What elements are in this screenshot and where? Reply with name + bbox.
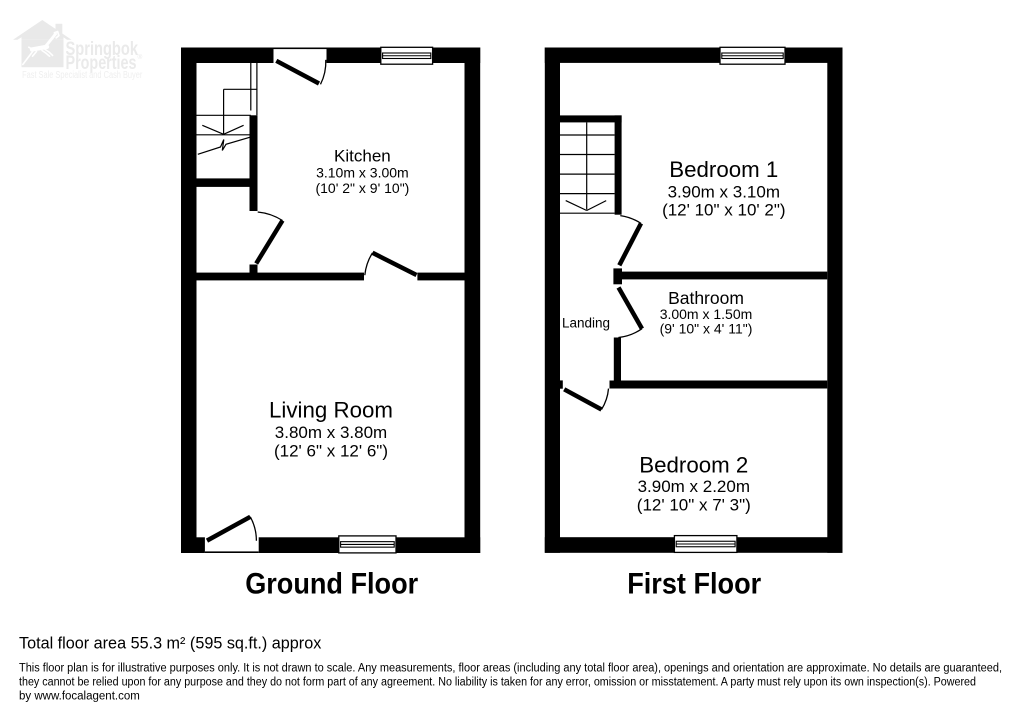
svg-text:Fast Sale Specialist and Cash: Fast Sale Specialist and Cash Buyer — [22, 70, 143, 81]
svg-text:Kitchen: Kitchen — [334, 147, 391, 166]
svg-text:®: ® — [138, 53, 143, 61]
svg-text:Ground Floor: Ground Floor — [245, 568, 418, 601]
svg-text:Bedroom 1: Bedroom 1 — [669, 157, 778, 182]
svg-text:Landing: Landing — [562, 315, 610, 330]
svg-text:Bedroom 2: Bedroom 2 — [639, 452, 748, 477]
svg-text:Total floor area 55.3 m² (595: Total floor area 55.3 m² (595 sq.ft.) ap… — [19, 634, 321, 652]
svg-text:they cannot be relied upon for: they cannot be relied upon for any purpo… — [19, 677, 976, 689]
svg-text:Bathroom: Bathroom — [668, 288, 744, 308]
svg-text:First Floor: First Floor — [627, 568, 761, 601]
svg-text:This floor plan is for illustr: This floor plan is for illustrative purp… — [19, 663, 1002, 675]
svg-text:3.90m x 2.20m: 3.90m x 2.20m — [638, 477, 750, 496]
svg-text:3.90m x 3.10m: 3.90m x 3.10m — [668, 182, 780, 201]
svg-text:by www.focalagent.com: by www.focalagent.com — [19, 691, 140, 703]
svg-text:3.80m x 3.80m: 3.80m x 3.80m — [275, 423, 387, 442]
svg-text:(12' 6" x 12' 6"): (12' 6" x 12' 6") — [274, 441, 388, 460]
svg-text:3.10m x 3.00m: 3.10m x 3.00m — [316, 165, 409, 181]
svg-text:(9' 10" x 4' 11"): (9' 10" x 4' 11") — [660, 321, 753, 337]
svg-text:(10' 2" x 9' 10"): (10' 2" x 9' 10") — [315, 180, 409, 196]
svg-text:(12' 10" x 7' 3"): (12' 10" x 7' 3") — [637, 496, 751, 515]
svg-text:Living Room: Living Room — [269, 397, 393, 422]
svg-text:(12' 10" x 10' 2"): (12' 10" x 10' 2") — [662, 201, 785, 220]
